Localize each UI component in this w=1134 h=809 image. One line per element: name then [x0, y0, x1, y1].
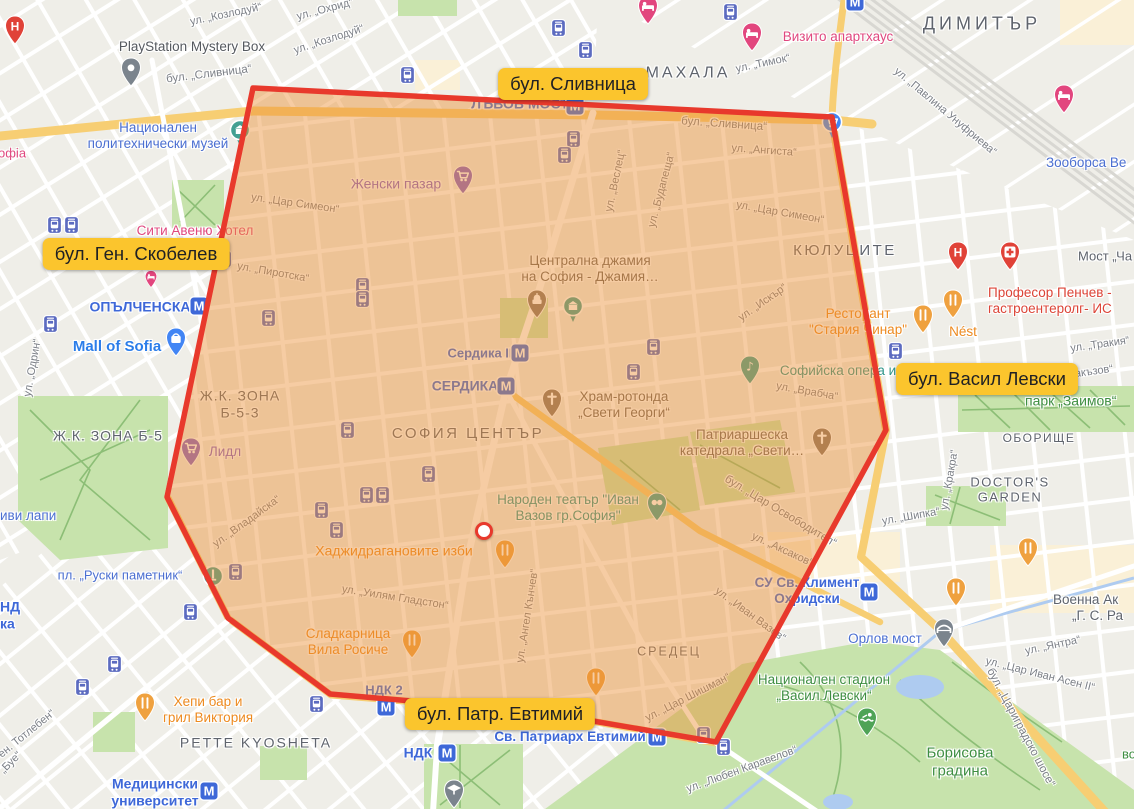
hotel-pin[interactable] — [1053, 84, 1075, 114]
metro-icon[interactable]: М — [376, 697, 396, 717]
area-label: Ж.К. ЗОНА Б-5 — [53, 428, 163, 445]
poi-label[interactable]: пл. „Руски паметник“ — [58, 567, 183, 582]
area-label: Мост „Ча — [1078, 248, 1132, 263]
tram-stop-icon[interactable] — [47, 216, 62, 234]
street-label: ул. „Одрин“ — [22, 338, 45, 398]
street-label: ул. „Цар Симеон“ — [250, 191, 340, 216]
street-label: ул. „Ангел Кънчев“ — [514, 568, 542, 663]
transit-label[interactable]: НД ка — [0, 598, 20, 631]
medical-pin[interactable] — [999, 241, 1021, 271]
tram-stop-icon[interactable] — [421, 465, 436, 483]
music-pin[interactable]: ♪ — [739, 355, 761, 385]
tram-stop-icon[interactable] — [183, 603, 198, 621]
street-label: ул. „Искър“ — [736, 282, 790, 325]
svg-text:М: М — [515, 346, 526, 361]
tram-stop-icon[interactable] — [646, 338, 661, 356]
area-label: МАХАЛА — [646, 65, 731, 84]
street-label: ул. „Аксаков“ — [749, 530, 814, 570]
svg-text:М: М — [864, 585, 875, 600]
restaurant-pin[interactable] — [134, 692, 156, 722]
svg-text:М: М — [652, 730, 663, 745]
svg-text:М: М — [194, 299, 205, 314]
tram-stop-icon[interactable] — [340, 421, 355, 439]
lidl-pin[interactable] — [821, 111, 843, 139]
poi-label[interactable]: Орлов мост — [848, 631, 922, 647]
poi-label[interactable]: Ресторант "Стария Чинар" — [809, 306, 907, 338]
tram-stop-icon[interactable] — [716, 738, 731, 756]
tram-stop-icon[interactable] — [107, 655, 122, 673]
metro-icon[interactable]: М — [189, 296, 209, 316]
poi-label[interactable]: Борисова градина — [926, 744, 993, 779]
area-label: СРЕДЕЦ — [637, 645, 701, 660]
area-label: DOCTOR'S GARDEN — [970, 475, 1049, 506]
poi-label[interactable]: Софийска опера и — [780, 363, 896, 379]
transit-label[interactable]: ЛЪВОВ МОСТ — [471, 96, 569, 113]
area-label: Ж.К. ЗОНА Б-5-3 — [200, 387, 280, 420]
metro-icon[interactable]: М — [859, 582, 879, 602]
restaurant-pin[interactable] — [494, 539, 516, 569]
street-label: ул. „Уилям Гладстон“ — [341, 583, 449, 613]
swim-pin[interactable] — [856, 707, 878, 737]
tram-stop-icon[interactable] — [359, 486, 374, 504]
graduation-pin[interactable] — [443, 779, 465, 809]
area-label: Военна Ак — [1053, 592, 1118, 608]
street-label: ул. „Охрид“ — [295, 0, 354, 24]
poi-label[interactable]: Национален политехнически музей — [88, 120, 229, 152]
poi-label[interactable]: Национален стадион „Васил Левски“ — [758, 672, 890, 704]
metro-icon[interactable]: М — [845, 0, 865, 12]
street-label: ул. „Веслец“ — [603, 149, 629, 213]
transit-label[interactable]: СУ Св. Климент Охридски — [755, 575, 860, 607]
masks-pin[interactable] — [646, 492, 668, 522]
map-viewport[interactable]: ул. „Козлодуй“ул. „Охрид“ул. „Козлодуй“б… — [0, 0, 1134, 809]
mall-pin[interactable] — [165, 327, 187, 357]
area-label: „Г. С. Ра — [1072, 608, 1123, 624]
area-label: КЮЛУЦИТЕ — [793, 242, 897, 260]
tram-stop-icon[interactable] — [43, 315, 58, 333]
poi-label[interactable]: Лидл — [209, 444, 241, 460]
svg-text:М: М — [501, 379, 512, 394]
svg-text:М: М — [204, 784, 215, 799]
mosque-pin[interactable] — [526, 289, 548, 319]
hotel-pin[interactable] — [637, 0, 659, 25]
bridge-pin[interactable] — [933, 618, 955, 648]
street-label: ул. „Шипка“ — [881, 506, 941, 529]
restaurant-pin[interactable] — [585, 667, 607, 697]
street-label: бул. „Сливница“ — [166, 63, 253, 87]
restaurant-pin[interactable] — [945, 577, 967, 607]
svg-text:М: М — [850, 0, 861, 10]
poi-label[interactable]: Храм-ротонда „Свети Георги“ — [578, 389, 670, 421]
transit-label[interactable]: ОПЪЛЧЕНСКА — [89, 299, 190, 316]
poi-label[interactable]: Женски пазар — [351, 176, 441, 193]
street-label: ул. „Цар Шишман“ — [643, 671, 732, 725]
poi-label[interactable]: Патриаршеска катедрала „Свети… — [680, 427, 804, 459]
tram-stop-icon[interactable] — [228, 563, 243, 581]
hospital-pin[interactable]: H — [4, 15, 26, 45]
street-label: бул. „Сливница“ — [681, 115, 768, 135]
svg-text:H: H — [11, 19, 20, 33]
street-label: ул. „Будапеща“ — [646, 151, 678, 229]
area-label: ОБОРИЩЕ — [1003, 431, 1076, 445]
street-label: ул. „Кракра“ — [938, 449, 961, 511]
metro-icon[interactable]: М — [437, 743, 457, 763]
street-label: ул. „Янтра“ — [1024, 634, 1082, 658]
tram-stop-icon[interactable] — [578, 41, 593, 59]
street-label: ул. „Тимок“ — [735, 52, 792, 76]
svg-text:H: H — [954, 245, 963, 259]
street-label: ул. „Козлодуй“ — [292, 23, 365, 58]
church-pin[interactable] — [811, 427, 833, 457]
museum-pin[interactable] — [562, 295, 584, 323]
area-label: ДИМИТЪР — [923, 13, 1041, 34]
poi-label[interactable]: Сити Авеню Хотел — [137, 223, 254, 239]
street-label: ул. „Врабча“ — [775, 380, 839, 404]
poi-label[interactable]: вое — [1122, 746, 1134, 761]
poi-label[interactable]: Mall of Sofia — [73, 338, 161, 356]
poi-label[interactable]: Хаджидрагановите изби — [315, 543, 472, 560]
tram-stop-icon[interactable] — [888, 342, 903, 360]
street-label: ен. Тотлебен“ — [0, 707, 58, 761]
svg-text:М: М — [442, 746, 453, 761]
poi-label[interactable]: офia — [0, 145, 26, 160]
street-label: бул. „Цар Освободител“ — [722, 473, 839, 551]
street-label: ул. „Пиротска“ — [236, 260, 310, 285]
tram-stop-icon[interactable] — [551, 19, 566, 37]
poi-label[interactable]: Визито апартхаус — [783, 29, 894, 45]
transit-label[interactable]: СЕРДИКА — [432, 378, 499, 395]
cart-pin[interactable] — [180, 437, 202, 467]
poi-label[interactable]: парк „Заимов“ — [1025, 393, 1116, 410]
tram-stop-icon[interactable] — [314, 501, 329, 519]
playstation-pin[interactable] — [120, 57, 142, 87]
transit-label[interactable]: Сердика II — [447, 345, 512, 360]
transit-label[interactable]: НДК — [404, 745, 433, 762]
metro-icon[interactable]: М — [510, 343, 530, 363]
tram-stop-icon[interactable] — [696, 726, 711, 744]
tram-stop-icon[interactable] — [723, 3, 738, 21]
area-label: СОФИЯ ЦЕНТЪР — [392, 425, 544, 443]
street-label: ул. „Владайска“ — [211, 493, 284, 551]
transit-label[interactable]: Св. Патриарх Евтимий — [494, 729, 645, 745]
tram-stop-icon[interactable] — [64, 216, 79, 234]
area-label: PETTE KYOSHETA — [180, 735, 332, 752]
metro-icon[interactable]: М — [565, 96, 585, 116]
poi-label[interactable]: PlayStation Mystery Box — [119, 39, 265, 55]
restaurant-pin[interactable] — [1017, 537, 1039, 567]
map-labels-layer: ул. „Козлодуй“ул. „Охрид“ул. „Козлодуй“б… — [0, 0, 1134, 809]
poi-label[interactable]: Централна джамия на София - Джамия… — [521, 253, 658, 285]
transit-label[interactable]: Медицински университет — [111, 775, 198, 808]
tram-stop-icon[interactable] — [557, 146, 572, 164]
hotel-pin[interactable] — [741, 22, 763, 52]
church-pin[interactable] — [541, 388, 563, 418]
street-label: ул. „Козлодуй“ — [189, 1, 263, 29]
tram-stop-icon[interactable] — [400, 66, 415, 84]
poi-label[interactable]: иви лапи — [0, 508, 56, 524]
monument-pin[interactable] — [202, 565, 224, 593]
poi-label[interactable]: Зооборса Ве — [1046, 155, 1126, 171]
street-label: ул. „Тракия“ — [1070, 334, 1131, 355]
poi-label[interactable]: Професор Пенчев - гастроентеролг- ИС — [988, 285, 1112, 317]
poi-label[interactable]: Сладкарница Вила Росиче — [306, 626, 390, 658]
tram-stop-icon[interactable] — [217, 250, 232, 268]
poi-label[interactable]: Народен театър "Иван Вазов гр.София" — [497, 492, 639, 524]
tram-stop-icon[interactable] — [75, 678, 90, 696]
museum-pin[interactable] — [229, 119, 251, 147]
tram-stop-icon[interactable] — [309, 695, 324, 713]
hotel-pin[interactable] — [144, 270, 157, 288]
tram-stop-icon[interactable] — [355, 290, 370, 308]
restaurant-pin[interactable] — [942, 289, 964, 319]
street-label: ул. „Ангиста“ — [731, 142, 797, 159]
metro-icon[interactable]: М — [647, 727, 667, 747]
poi-label[interactable]: Nést — [949, 324, 977, 340]
tram-stop-icon[interactable] — [329, 521, 344, 539]
hospital-pin[interactable]: H — [947, 241, 969, 271]
transit-label[interactable]: НДК 2 — [365, 682, 402, 697]
restaurant-pin[interactable] — [912, 304, 934, 334]
tram-stop-icon[interactable] — [375, 486, 390, 504]
svg-text:♪: ♪ — [746, 360, 754, 374]
metro-icon[interactable]: М — [496, 376, 516, 396]
cart-pin[interactable] — [452, 165, 474, 195]
svg-text:М: М — [570, 99, 581, 114]
poi-label[interactable]: Хепи бар и грил Виктория — [163, 694, 253, 726]
restaurant-pin[interactable] — [401, 629, 423, 659]
tram-stop-icon[interactable] — [626, 363, 641, 381]
street-label: ул. „Любен Каравелов“ — [685, 744, 799, 796]
street-label: ул. „Павлина Унуфриева“ — [891, 65, 999, 158]
street-label: акъзов“ — [1074, 363, 1114, 381]
tram-stop-icon[interactable] — [261, 309, 276, 327]
metro-icon[interactable]: М — [199, 781, 219, 801]
street-label: бул. „Цариградско шосе“ — [983, 666, 1057, 789]
street-label: ул. „Цар Симеон“ — [735, 199, 825, 227]
svg-text:М: М — [381, 700, 392, 715]
